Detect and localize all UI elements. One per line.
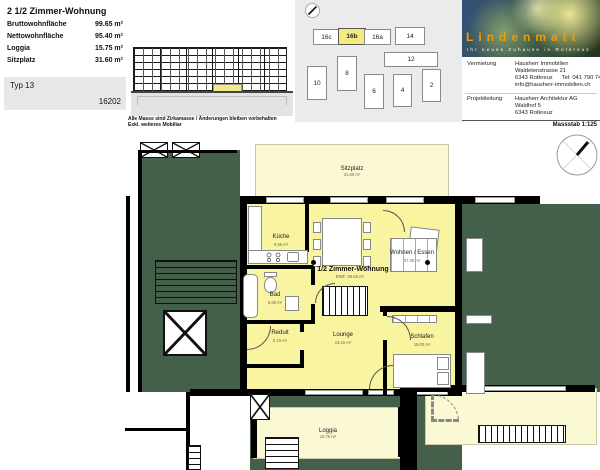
loggia-door	[368, 390, 394, 395]
stat-row: Loggia 15.75 m²	[7, 45, 123, 52]
divider	[465, 93, 597, 94]
siteplan-building-14: 14	[395, 27, 425, 45]
wall	[125, 428, 186, 431]
zone-lowerleft	[125, 392, 186, 470]
chair	[363, 222, 371, 233]
kitchen-sink	[287, 252, 299, 262]
terrace-stair	[478, 425, 566, 443]
unit-title: 2 1/2 Zimmer-Wohnung	[7, 6, 106, 16]
apartment-label: 2 1/2 Zimmer-Wohnung BWF: 99.65 m²	[290, 266, 410, 280]
wall	[138, 150, 142, 392]
floor-plan: Sitzplatz 31.60 m² Loggia 15.75 m²	[125, 138, 600, 470]
window	[475, 197, 515, 203]
room-label-kueche: Küche 9.95 m²	[251, 234, 311, 248]
elevator-icon	[163, 310, 207, 356]
siteplan-building-16c: 16c	[313, 29, 340, 45]
stat-label: Sitzplatz	[7, 57, 35, 64]
stat-label: Bruttowohnfläche	[7, 21, 67, 28]
brand-photo: Lindenmatt Ihr neues Zuhause in Rotkreuz	[462, 0, 600, 57]
elevation-grid	[133, 47, 287, 93]
wall-east	[455, 196, 462, 396]
wall	[138, 150, 237, 153]
type-box: Typ 13 16202	[4, 77, 126, 110]
unit-number: 16202	[99, 97, 121, 106]
window	[330, 197, 368, 203]
north-arrow-icon	[305, 3, 320, 18]
siteplan-building-4: 4	[393, 74, 412, 107]
scale-label: Massstab 1:125	[553, 122, 597, 128]
stat-label: Nettowohnfläche	[7, 33, 63, 40]
wall	[380, 306, 462, 312]
room-sitzplatz: Sitzplatz 31.60 m²	[255, 144, 449, 198]
brand-name: Lindenmatt	[466, 30, 598, 44]
elevation-caption: Alle Masse sind Zirkamasse / Änderungen …	[128, 116, 296, 128]
stat-label: Loggia	[7, 45, 30, 52]
site-plan: 16c 16b 16a 14 12 10 8 6 4 2	[295, 0, 464, 122]
column-dot	[311, 260, 316, 265]
window	[478, 386, 566, 391]
stat-value: 31.60 m²	[95, 57, 123, 64]
room-label-wohnen-essen: Wohnen / Essen 37.30 m²	[362, 250, 462, 264]
neighbor-sofa	[466, 238, 483, 272]
siteplan-building-8: 8	[337, 56, 357, 91]
stairwell-stairs	[155, 260, 237, 304]
pillow	[437, 357, 449, 370]
contact-projektleitung: Projektleitung Hausherr Architektur AG W…	[467, 96, 597, 117]
wall	[398, 407, 403, 457]
siteplan-building-16b-highlighted: 16b	[338, 28, 366, 45]
stat-row: Nettowohnfläche 95.40 m²	[7, 33, 123, 40]
wall	[240, 364, 304, 368]
siteplan-building-6: 6	[364, 74, 384, 109]
brand-panel: Lindenmatt Ihr neues Zuhause in Rotkreuz…	[462, 0, 600, 121]
siteplan-building-10: 10	[307, 66, 327, 100]
chair	[313, 239, 321, 250]
room-label-reduit: Reduit 5.10 m²	[251, 330, 309, 344]
chair	[363, 239, 371, 250]
building-elevation: Alle Masse sind Zirkamasse / Änderungen …	[128, 44, 296, 130]
wardrobe-icon	[250, 394, 270, 420]
floorplan-sheet: 2 1/2 Zimmer-Wohnung Bruttowohnfläche 99…	[0, 0, 600, 470]
window	[266, 197, 304, 203]
room-label-schlafen: Schlafen 18.00 m²	[391, 334, 453, 348]
neighbor-sideboard	[466, 315, 492, 324]
siteplan-building-16a: 16a	[364, 29, 391, 45]
elevation-base-inset	[137, 96, 287, 105]
window	[386, 197, 424, 203]
contact-email: info@hausherr-immobilien.ch	[515, 82, 600, 89]
stat-value: 99.65 m²	[95, 21, 123, 28]
pillow	[437, 372, 449, 385]
siteplan-building-2: 2	[422, 69, 441, 102]
dining-table	[322, 218, 362, 266]
loggia-stair	[265, 437, 299, 469]
exterior-stair	[188, 445, 201, 470]
toilet	[264, 277, 277, 293]
wall	[126, 196, 130, 392]
elevation-base	[131, 91, 293, 116]
stat-value: 15.75 m²	[95, 45, 123, 52]
contact-vermietung: Vermietung Hausherr Immobilien Waldetens…	[467, 61, 597, 89]
stove-icon	[265, 252, 283, 262]
brand-tagline: Ihr neues Zuhause in Rotkreuz	[467, 47, 598, 52]
siteplan-building-12: 12	[384, 52, 438, 67]
room-label-lounge: Lounge 19.15 m²	[307, 332, 379, 346]
stat-row: Sitzplatz 31.60 m²	[7, 57, 123, 64]
stat-value: 95.40 m²	[95, 33, 123, 40]
window	[305, 390, 363, 395]
stat-row: Bruttowohnfläche 99.65 m²	[7, 21, 123, 28]
chair	[313, 222, 321, 233]
neighbor-bed	[466, 352, 485, 394]
type-label: Typ 13	[10, 81, 34, 90]
room-label-bad: Bad 5.85 m²	[251, 292, 299, 306]
